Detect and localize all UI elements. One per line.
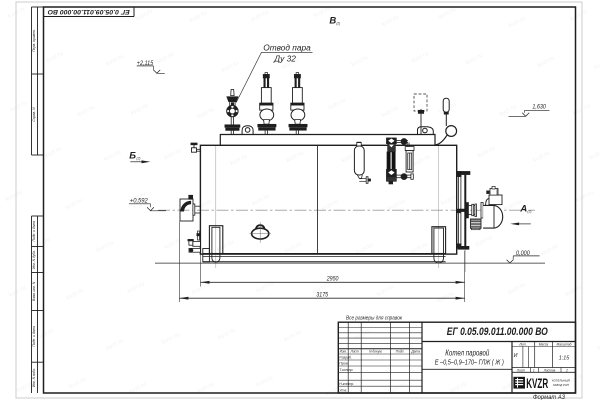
svg-text:ЕГ 0.05.09.011.00.000 ВО: ЕГ 0.05.09.011.00.000 ВО (447, 326, 548, 338)
svg-text:Подп.: Подп. (396, 349, 405, 353)
svg-text:Котел паровой: Котел паровой (445, 348, 489, 357)
svg-text:Изм.: Изм. (340, 349, 347, 353)
svg-text:KVZR: KVZR (526, 376, 548, 391)
svg-text:(2): (2) (528, 209, 532, 213)
svg-text:ЕГ 0.05.09.011.00.000 ВО: ЕГ 0.05.09.011.00.000 ВО (47, 8, 129, 14)
svg-text:Дата: Дата (410, 349, 420, 353)
svg-text:Е –0,5–0,9–170– ГЛЖ ( Ж ): Е –0,5–0,9–170– ГЛЖ ( Ж ) (435, 360, 504, 367)
svg-text:Б: Б (129, 150, 136, 161)
svg-text:Формат А3: Формат А3 (533, 395, 566, 400)
svg-text:1,630: 1,630 (532, 104, 546, 110)
svg-text:Подп. и дата: Подп. и дата (32, 221, 36, 242)
svg-text:Т.контр.: Т.контр. (339, 368, 353, 372)
svg-text:(2): (2) (336, 21, 340, 25)
svg-text:В: В (329, 15, 336, 26)
svg-text:Взам. инв. N: Взам. инв. N (32, 281, 36, 301)
svg-text:Масса: Масса (539, 343, 549, 347)
svg-text:Перв. примен.: Перв. примен. (32, 29, 36, 52)
svg-text:Отвод пара: Отвод пара (263, 43, 311, 53)
svg-text:Н.контр.: Н.контр. (339, 382, 354, 386)
svg-text:Листов: Листов (543, 368, 556, 372)
svg-text:N докум.: N докум. (369, 349, 382, 353)
svg-text:Пров.: Пров. (339, 362, 348, 366)
svg-text:Масштаб: Масштаб (557, 343, 572, 347)
svg-text:Лист: Лист (349, 349, 359, 353)
svg-text:1:15: 1:15 (559, 356, 570, 362)
svg-text:Ду 32: Ду 32 (273, 54, 296, 64)
svg-text:Инв. N дубл.: Инв. N дубл. (32, 250, 36, 269)
svg-text:Инв. N подл.: Инв. N подл. (32, 368, 36, 387)
svg-text:0,000: 0,000 (516, 251, 530, 257)
svg-text:И: И (514, 353, 518, 359)
svg-text:(2): (2) (137, 157, 141, 161)
svg-text:Лит.: Лит. (518, 343, 527, 347)
svg-text:Все размеры для справок: Все размеры для справок (346, 316, 402, 322)
svg-text:2950: 2950 (326, 276, 339, 283)
svg-text:А: А (519, 203, 527, 214)
svg-text:ЗАВОД РЭП: ЗАВОД РЭП (553, 383, 570, 387)
svg-text:3175: 3175 (316, 292, 328, 299)
svg-text:Подп. и дата: Подп. и дата (32, 326, 36, 347)
svg-text:Справ. N: Справ. N (32, 107, 36, 122)
svg-text:Разраб.: Разраб. (339, 356, 352, 360)
svg-text:Утв.: Утв. (339, 388, 347, 392)
svg-text:2: 2 (565, 368, 568, 372)
svg-text:1: 1 (533, 368, 535, 372)
svg-text:Лист: Лист (516, 368, 526, 372)
